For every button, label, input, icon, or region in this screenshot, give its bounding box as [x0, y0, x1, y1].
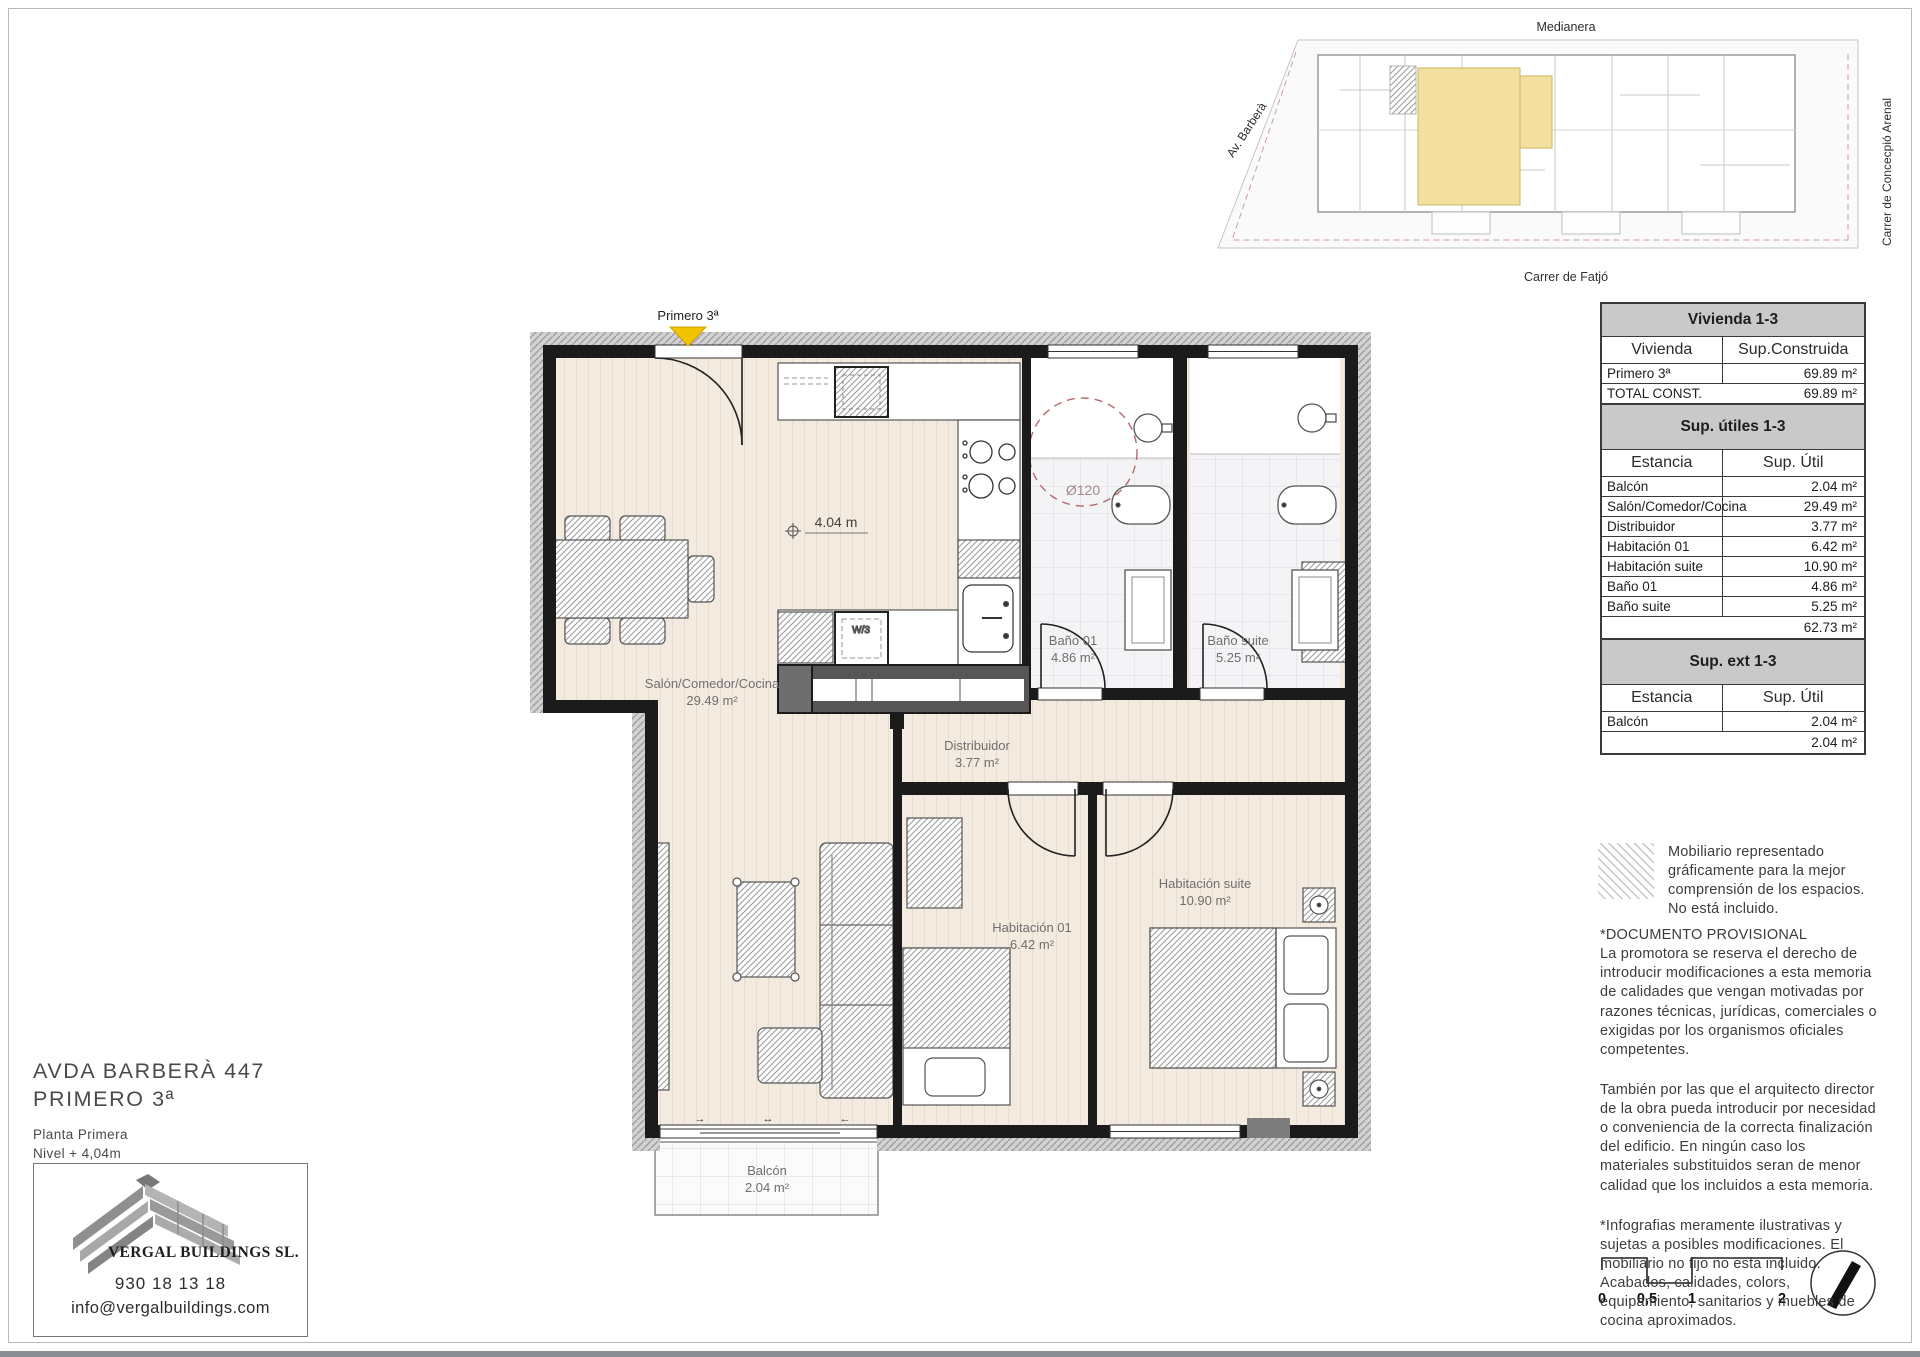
svg-text:Balcón: Balcón: [747, 1163, 787, 1178]
table-row: Balcón2.04 m²: [1602, 477, 1864, 497]
col-estancia: Estancia: [1602, 450, 1723, 476]
svg-text:3.77 m²: 3.77 m²: [955, 755, 1000, 770]
table-row: Baño 014.86 m²: [1602, 577, 1864, 597]
project-address: AVDA BARBERÀ 447 PRIMERO 3ª Planta Prime…: [33, 1058, 265, 1164]
table-title-ext: Sup. ext 1-3: [1602, 639, 1864, 685]
company-logo: [48, 1174, 268, 1284]
basin: [1134, 414, 1162, 442]
balcony-floor: [655, 1142, 878, 1215]
svg-text:6.42 m²: 6.42 m²: [1010, 937, 1055, 952]
svg-text:Distribuidor: Distribuidor: [944, 738, 1010, 753]
street-label-fatjo: Carrer de Fatjó: [1524, 270, 1608, 284]
street-label-medianera: Medianera: [1536, 20, 1595, 34]
unit-label: Primero 3ª: [657, 308, 718, 323]
svg-text:Habitación 01: Habitación 01: [992, 920, 1072, 935]
svg-text:Baño suite: Baño suite: [1207, 633, 1268, 648]
furniture-note-text: Mobiliario representado gráficamente par…: [1668, 843, 1873, 918]
floor-plan: W/3: [530, 308, 1371, 1215]
table-row: Salón/Comedor/Cocina29.49 m²: [1602, 497, 1864, 517]
level-label: 4.04 m: [815, 514, 858, 530]
plan-height: Nivel + 4,04m: [33, 1144, 265, 1164]
bath01-vanity-zone: [1031, 358, 1173, 458]
table-title-vivienda: Vivienda 1-3: [1602, 304, 1864, 337]
furniture-note: Mobiliario representado gráficamente par…: [1598, 843, 1873, 918]
col-construida: Sup.Construida: [1723, 337, 1864, 363]
svg-text:5.25 m²: 5.25 m²: [1216, 650, 1261, 665]
table-row: Distribuidor3.77 m²: [1602, 517, 1864, 537]
company-phone: 930 18 13 18: [34, 1274, 307, 1294]
area-tables: Vivienda 1-3 Vivienda Sup.Construida Pri…: [1600, 302, 1866, 755]
table-row: Habitación 016.42 m²: [1602, 537, 1864, 557]
hatch-swatch-icon: [1598, 843, 1654, 899]
company-email: info@vergalbuildings.com: [34, 1299, 307, 1318]
toilet: [1112, 486, 1170, 524]
table-header: Estancia Sup. Útil: [1602, 450, 1864, 477]
table-title-utiles: Sup. útiles 1-3: [1602, 404, 1864, 450]
coffee-table: [733, 878, 799, 981]
street-label-arenal: Carrer de Concecpió Arenal: [1880, 98, 1894, 246]
address-line2: PRIMERO 3ª: [33, 1086, 265, 1114]
company-name: VERGAL BUILDINGS SL.: [108, 1244, 299, 1262]
svg-text:↔: ↔: [763, 1113, 774, 1125]
table-header: Vivienda Sup.Construida: [1602, 337, 1864, 364]
legal-paragraph-3: *Infografias meramente ilustrativas y su…: [1600, 1217, 1878, 1332]
table-row: TOTAL CONST. 69.89 m²: [1602, 384, 1864, 404]
company-card: VERGAL BUILDINGS SL. 930 18 13 18 info@v…: [33, 1163, 308, 1337]
svg-text:Baño 01: Baño 01: [1049, 633, 1097, 648]
page-bottom-edge: [0, 1351, 1920, 1357]
col-vivienda: Vivienda: [1602, 337, 1723, 363]
table-header: Estancia Sup. Útil: [1602, 685, 1864, 712]
address-line1: AVDA BARBERÀ 447: [33, 1058, 265, 1086]
legal-paragraph-1: La promotora se reserva el derecho de in…: [1600, 945, 1878, 1060]
table-row: Primero 3ª 69.89 m²: [1602, 364, 1864, 384]
svg-text:2.04 m²: 2.04 m²: [745, 1180, 790, 1195]
table-row: Balcón 2.04 m²: [1602, 712, 1864, 732]
site-balconies: [1432, 212, 1740, 234]
wall-pier: [1247, 1118, 1290, 1138]
svg-text:29.49 m²: 29.49 m²: [686, 693, 738, 708]
site-plan: Medianera Carrer de Fatjó Av. Barberà Ca…: [1218, 20, 1894, 284]
svg-text:Habitación suite: Habitación suite: [1159, 876, 1252, 891]
svg-text:4.86 m²: 4.86 m²: [1051, 650, 1096, 665]
washer-label: W/3: [852, 625, 870, 636]
svg-text:←: ←: [840, 1113, 851, 1125]
table-row: Habitación suite10.90 m²: [1602, 557, 1864, 577]
col-sup-util: Sup. Útil: [1723, 450, 1864, 476]
ext-total: 2.04 m²: [1602, 732, 1864, 753]
toilet: [1278, 486, 1336, 524]
legal-paragraph-2: También por las que el arquitecto direct…: [1600, 1081, 1878, 1196]
svg-text:10.90 m²: 10.90 m²: [1179, 893, 1231, 908]
table-row: Baño suite5.25 m²: [1602, 597, 1864, 617]
svg-text:Salón/Comedor/Cocina: Salón/Comedor/Cocina: [645, 676, 780, 691]
utiles-total: 62.73 m²: [1602, 617, 1864, 639]
site-stair-core: [1390, 66, 1416, 114]
svg-text:→: →: [695, 1113, 706, 1125]
basin: [1298, 404, 1326, 432]
washing-machine: W/3: [835, 612, 888, 665]
legal-notes: *DOCUMENTO PROVISIONAL La promotora se r…: [1600, 926, 1878, 1352]
kitchen-sink: [963, 585, 1013, 652]
plan-level: Planta Primera: [33, 1125, 265, 1145]
turning-circle-label: Ø120: [1066, 482, 1100, 498]
provisional-title: *DOCUMENTO PROVISIONAL: [1600, 926, 1878, 945]
